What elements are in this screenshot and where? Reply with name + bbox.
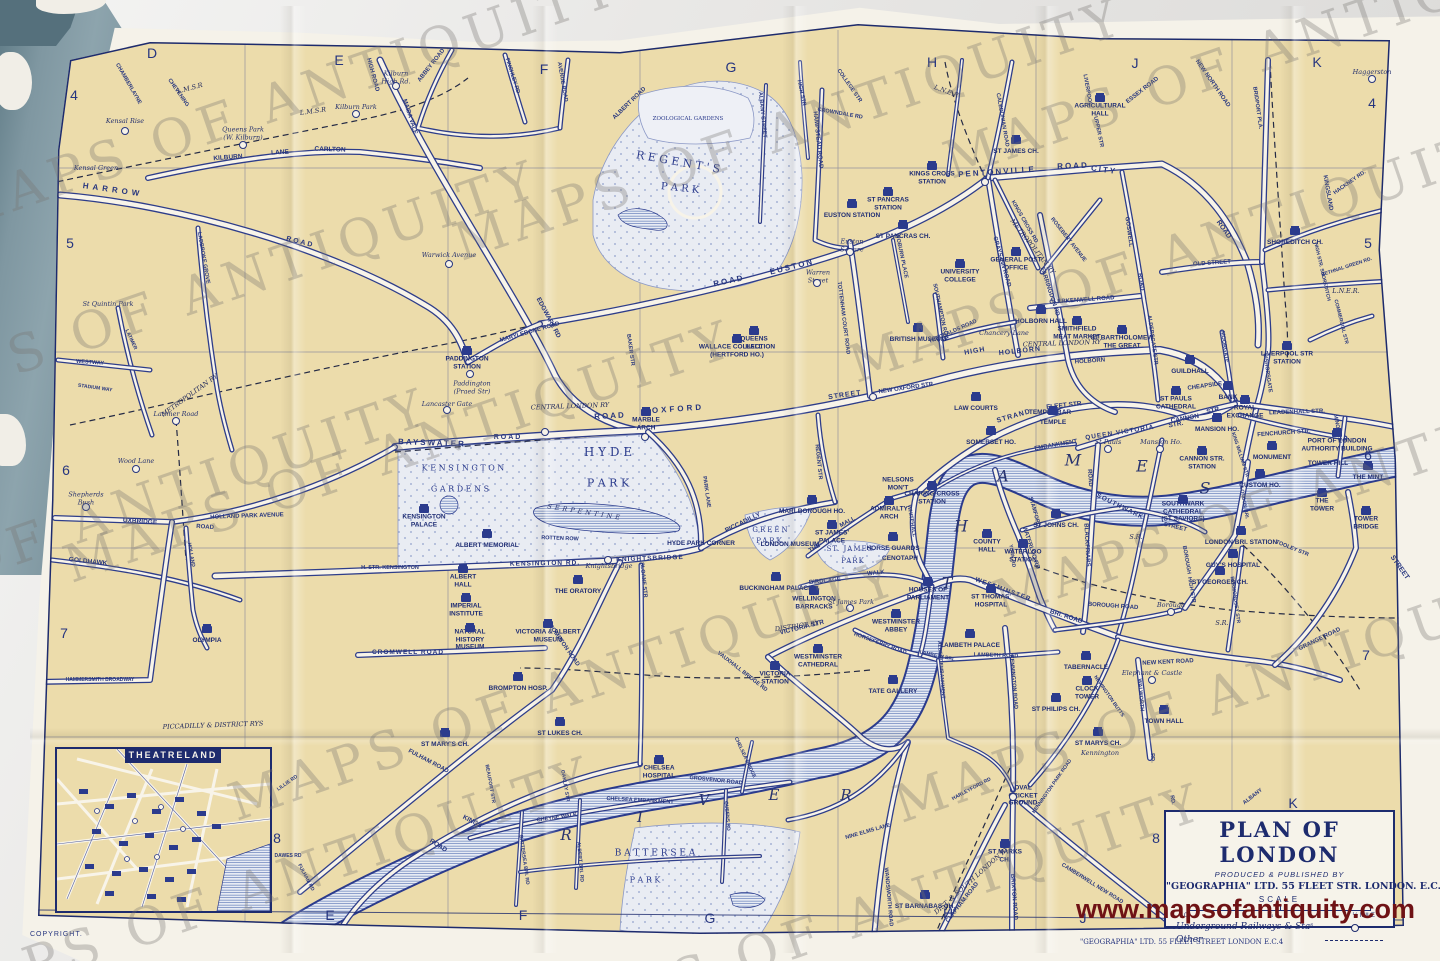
inset-title: THEATRELAND (125, 748, 221, 763)
map-publisher: "GEOGRAPHIA" LTD. 55 FLEET STR. LONDON. … (1166, 881, 1393, 892)
underground-line-symbol (1325, 927, 1383, 928)
round-pond (440, 496, 458, 514)
copyright-note: COPYRIGHT. (30, 931, 83, 938)
photo-background: HARROWROADKILBURNLANECARLTONCHAMBERLAYNE… (0, 0, 1440, 961)
map-subtitle: PRODUCED & PUBLISHED BY (1166, 870, 1393, 879)
theatreland-inset: THEATRELAND (55, 747, 272, 913)
watermark-url: www.mapsofantiquity.com (1076, 894, 1415, 925)
road (1012, 797, 1013, 940)
theatreland-inset-streets (57, 749, 270, 911)
map-title: PLAN OF LONDON (1166, 817, 1393, 867)
publisher-imprint: "GEOGRAPHIA" LTD. 55 FLEET STREET LONDON… (1080, 938, 1430, 946)
